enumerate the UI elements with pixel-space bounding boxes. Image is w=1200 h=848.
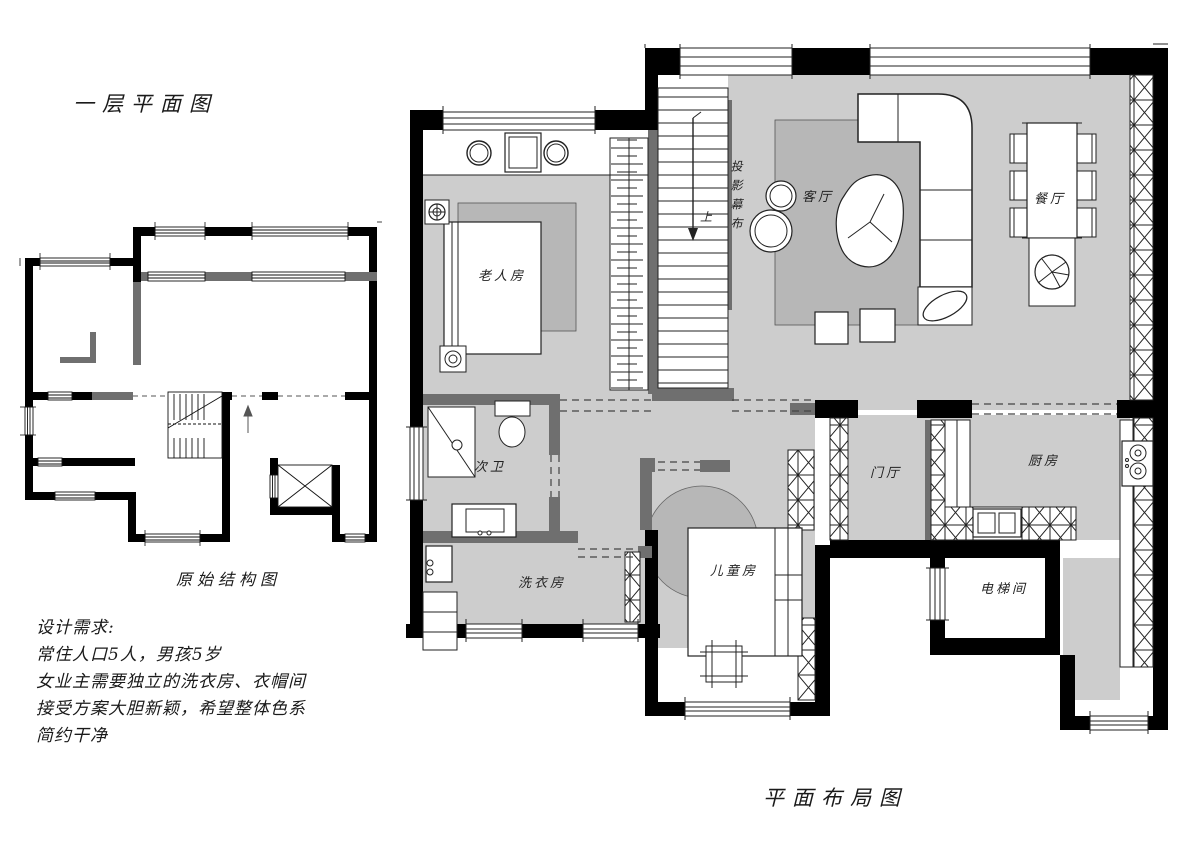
layout-plan-drawing [406,44,1168,734]
original-structure-plan-drawing [20,222,382,546]
requirement-line: 常住人口5人，男孩5岁 [36,642,306,669]
structure-up-arrow [244,406,252,433]
requirement-line: 接受方案大胆新颖，希望整体色系 [36,696,306,723]
requirement-line: 简约干净 [36,723,306,750]
label-elevator-room: 电梯间 [980,578,1028,597]
label-elder-room: 老人房 [478,265,526,284]
floor-plan-canvas: 一层平面图 原始结构图 平面布局图 设计需求: 常住人口5人，男孩5岁 女业主需… [0,0,1200,848]
label-entry-hall: 门厅 [870,462,902,481]
label-children-room: 儿童房 [710,560,758,579]
label-stair-up: 上 [700,208,715,225]
label-projection-screen: 投影幕布 [728,160,745,255]
requirements-heading: 设计需求: [36,615,306,642]
elder-room-closet [610,138,648,390]
label-second-bath: 次卫 [474,456,506,475]
page-title: 一层平面图 [73,88,218,118]
laundry-fixtures [423,546,457,650]
label-kitchen: 厨房 [1028,450,1060,469]
design-requirements: 设计需求: 常住人口5人，男孩5岁 女业主需要独立的洗衣房、衣帽间 接受方案大胆… [36,615,306,750]
requirement-line: 女业主需要独立的洗衣房、衣帽间 [36,669,306,696]
children-room-furniture [688,528,802,688]
structure-elevator [278,465,332,507]
structure-stair [168,392,222,458]
original-structure-caption: 原始结构图 [176,566,281,590]
label-dining-room: 餐厅 [1034,188,1066,207]
label-laundry: 洗衣房 [518,572,566,591]
label-living-room: 客厅 [802,186,834,205]
layout-plan-caption: 平面布局图 [763,782,908,812]
staircase [658,88,728,388]
structure-gray-walls [60,272,377,400]
